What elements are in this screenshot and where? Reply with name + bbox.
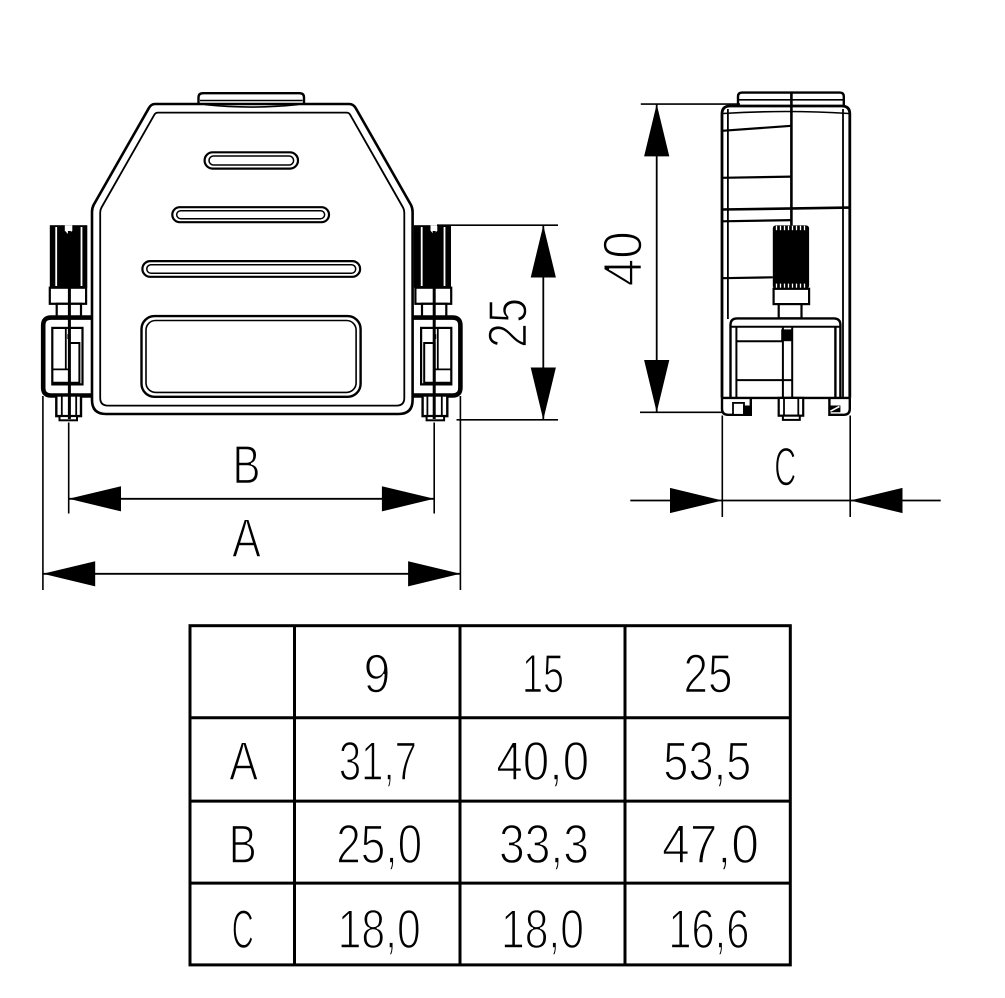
svg-text:C: C xyxy=(232,898,254,960)
svg-text:15: 15 xyxy=(522,643,564,705)
svg-text:31,7: 31,7 xyxy=(339,730,417,792)
svg-text:47,0: 47,0 xyxy=(662,813,759,875)
svg-text:C: C xyxy=(774,435,796,497)
svg-text:A: A xyxy=(232,507,261,569)
svg-text:40,0: 40,0 xyxy=(496,730,589,792)
svg-text:25: 25 xyxy=(684,643,733,705)
svg-text:40: 40 xyxy=(591,231,653,286)
svg-text:18,0: 18,0 xyxy=(338,898,421,960)
svg-text:18,0: 18,0 xyxy=(501,898,584,960)
svg-text:A: A xyxy=(229,730,258,792)
svg-text:25,0: 25,0 xyxy=(336,813,422,875)
svg-text:33,3: 33,3 xyxy=(499,813,589,875)
svg-text:25: 25 xyxy=(477,298,539,348)
svg-text:B: B xyxy=(229,813,257,875)
svg-text:B: B xyxy=(233,433,261,495)
svg-text:9: 9 xyxy=(364,643,391,705)
svg-text:53,5: 53,5 xyxy=(663,730,751,792)
svg-text:16,6: 16,6 xyxy=(668,898,749,960)
